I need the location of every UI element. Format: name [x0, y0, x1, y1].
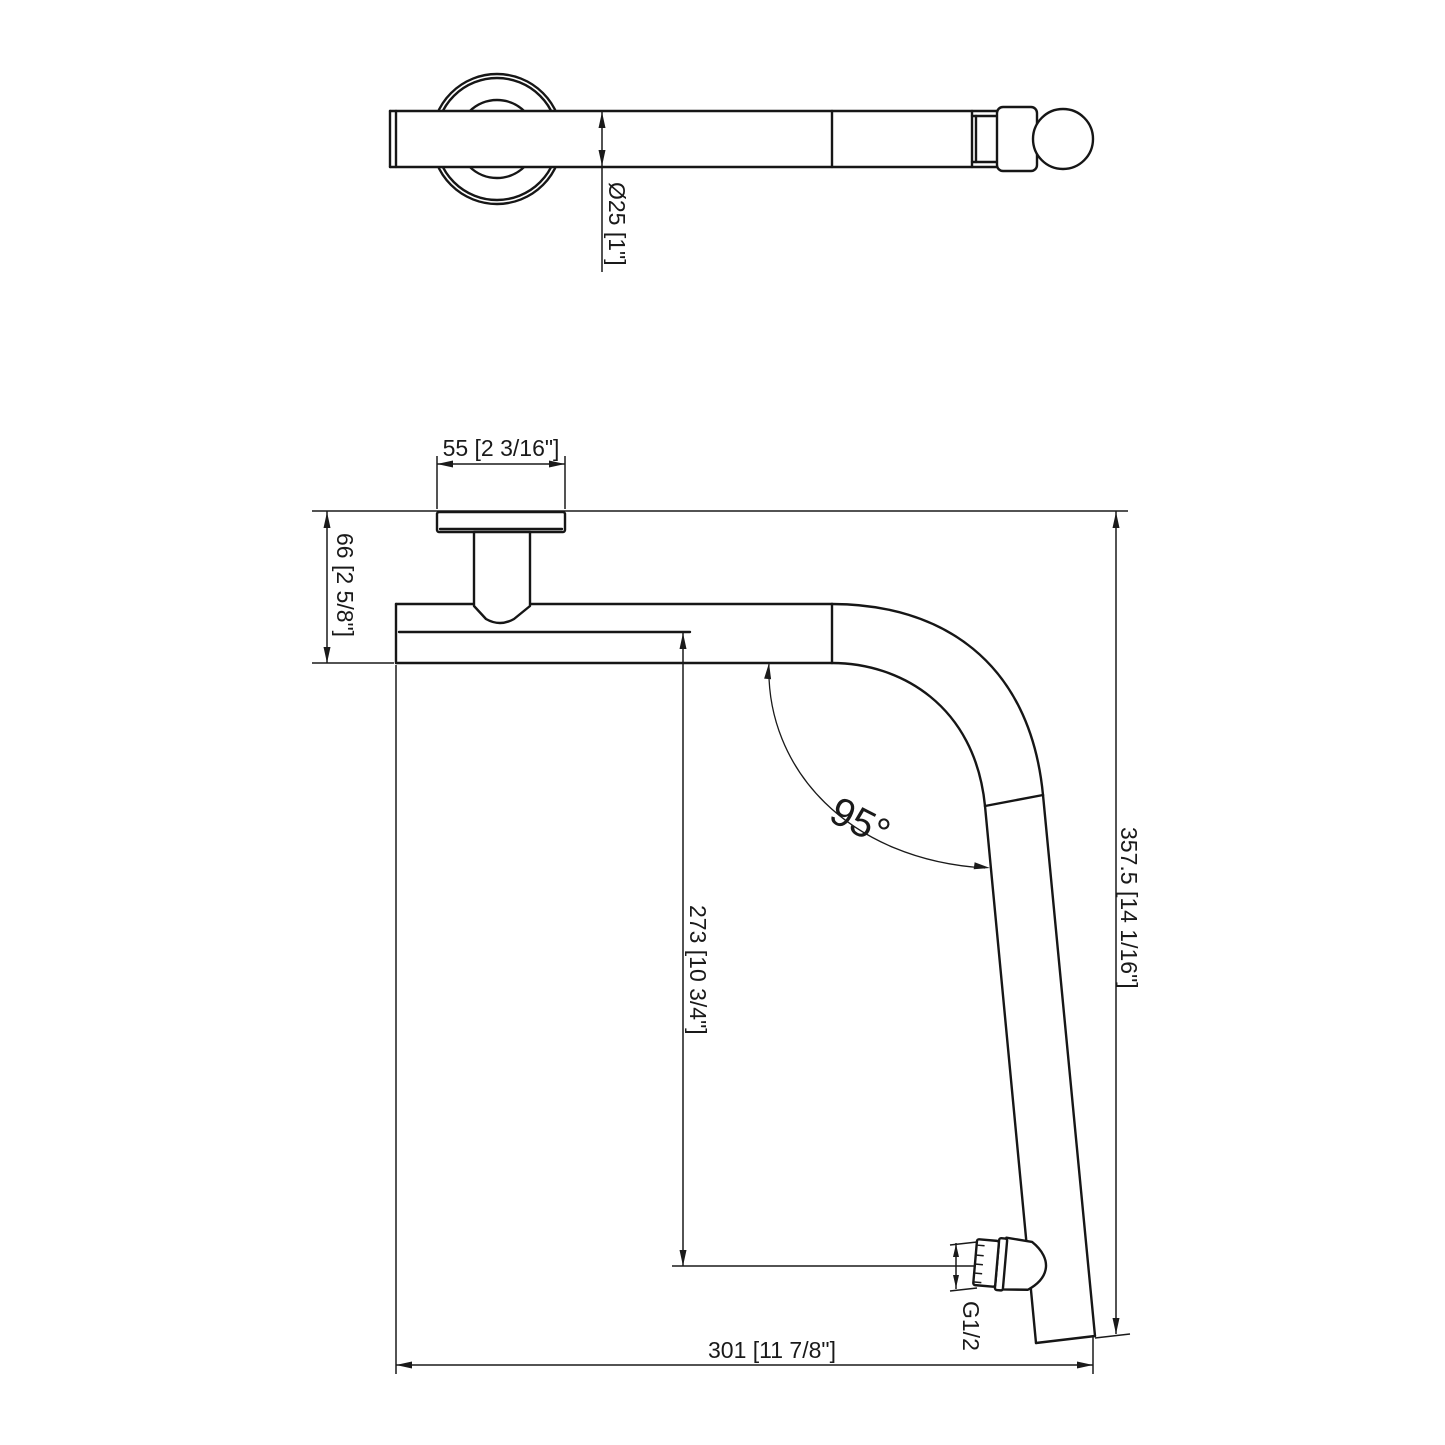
- arrow-left-icon: [396, 1362, 412, 1369]
- elbow-seam-line: [985, 795, 1043, 806]
- wall-flange-side: [437, 512, 565, 623]
- dim-flange-drop: 66 [2 5/8"]: [312, 511, 394, 663]
- dim-overall-height: 357.5 [14 1/16"]: [1095, 511, 1142, 1338]
- elbow-outer-curve: [832, 604, 1043, 795]
- tube-end-cap: [1036, 1336, 1095, 1343]
- nozzle-dome: [1002, 1238, 1048, 1293]
- elbow-inner-curve: [832, 663, 985, 806]
- dim-center-to-outlet-label: 273 [10 3/4"]: [685, 905, 711, 1035]
- side-view: 55 [2 3/16"] 66 [2 5/8"] 273 [10 3/4"]: [312, 435, 1142, 1374]
- dim-overall-height-label: 357.5 [14 1/16"]: [1116, 827, 1142, 989]
- dim-center-to-outlet: 273 [10 3/4"]: [672, 632, 975, 1266]
- nozzle-thread: [973, 1239, 999, 1287]
- dim-overall-length-label: 301 [11 7/8"]: [708, 1337, 836, 1363]
- arrow-up-icon: [680, 633, 687, 649]
- elbow-and-drop-tube: [832, 604, 1095, 1343]
- arm-tube-top: [390, 111, 1033, 167]
- arrow-right-icon: [1077, 1362, 1093, 1369]
- shower-arm-cad-drawing: Ø25 [1"]: [0, 0, 1445, 1445]
- arrow-down-icon: [953, 1275, 959, 1288]
- flange-stem: [474, 532, 530, 623]
- dim-outlet-thread-label: G1/2: [958, 1301, 984, 1351]
- dim-flange-width: 55 [2 3/16"]: [437, 435, 565, 509]
- outlet-nut-top: [997, 107, 1037, 171]
- arrow-up-icon: [324, 512, 331, 528]
- dim-flange-drop-label: 66 [2 5/8"]: [332, 533, 358, 637]
- arrow-right-icon: [549, 461, 565, 468]
- arrow-right-icon: [974, 862, 991, 871]
- arrow-left-icon: [437, 461, 453, 468]
- arrow-up-icon: [953, 1244, 959, 1257]
- arrow-down-icon: [324, 647, 331, 663]
- arrow-down-icon: [680, 1250, 687, 1266]
- top-view: Ø25 [1"]: [390, 74, 1093, 272]
- dim-flange-width-label: 55 [2 3/16"]: [443, 435, 560, 461]
- outlet-ball-top: [1033, 109, 1093, 169]
- dim-arm-diameter-label: Ø25 [1"]: [604, 182, 630, 266]
- arrow-down-icon: [1113, 1318, 1120, 1334]
- arm-horizontal-tube: [396, 604, 832, 663]
- dim-bend-angle: 95°: [764, 663, 990, 872]
- dim-bend-angle-label: 95°: [823, 789, 897, 856]
- technical-drawing-sheet: Ø25 [1"]: [0, 0, 1445, 1445]
- outlet-nozzle: [973, 1235, 1048, 1294]
- arrow-up-icon: [1113, 512, 1120, 528]
